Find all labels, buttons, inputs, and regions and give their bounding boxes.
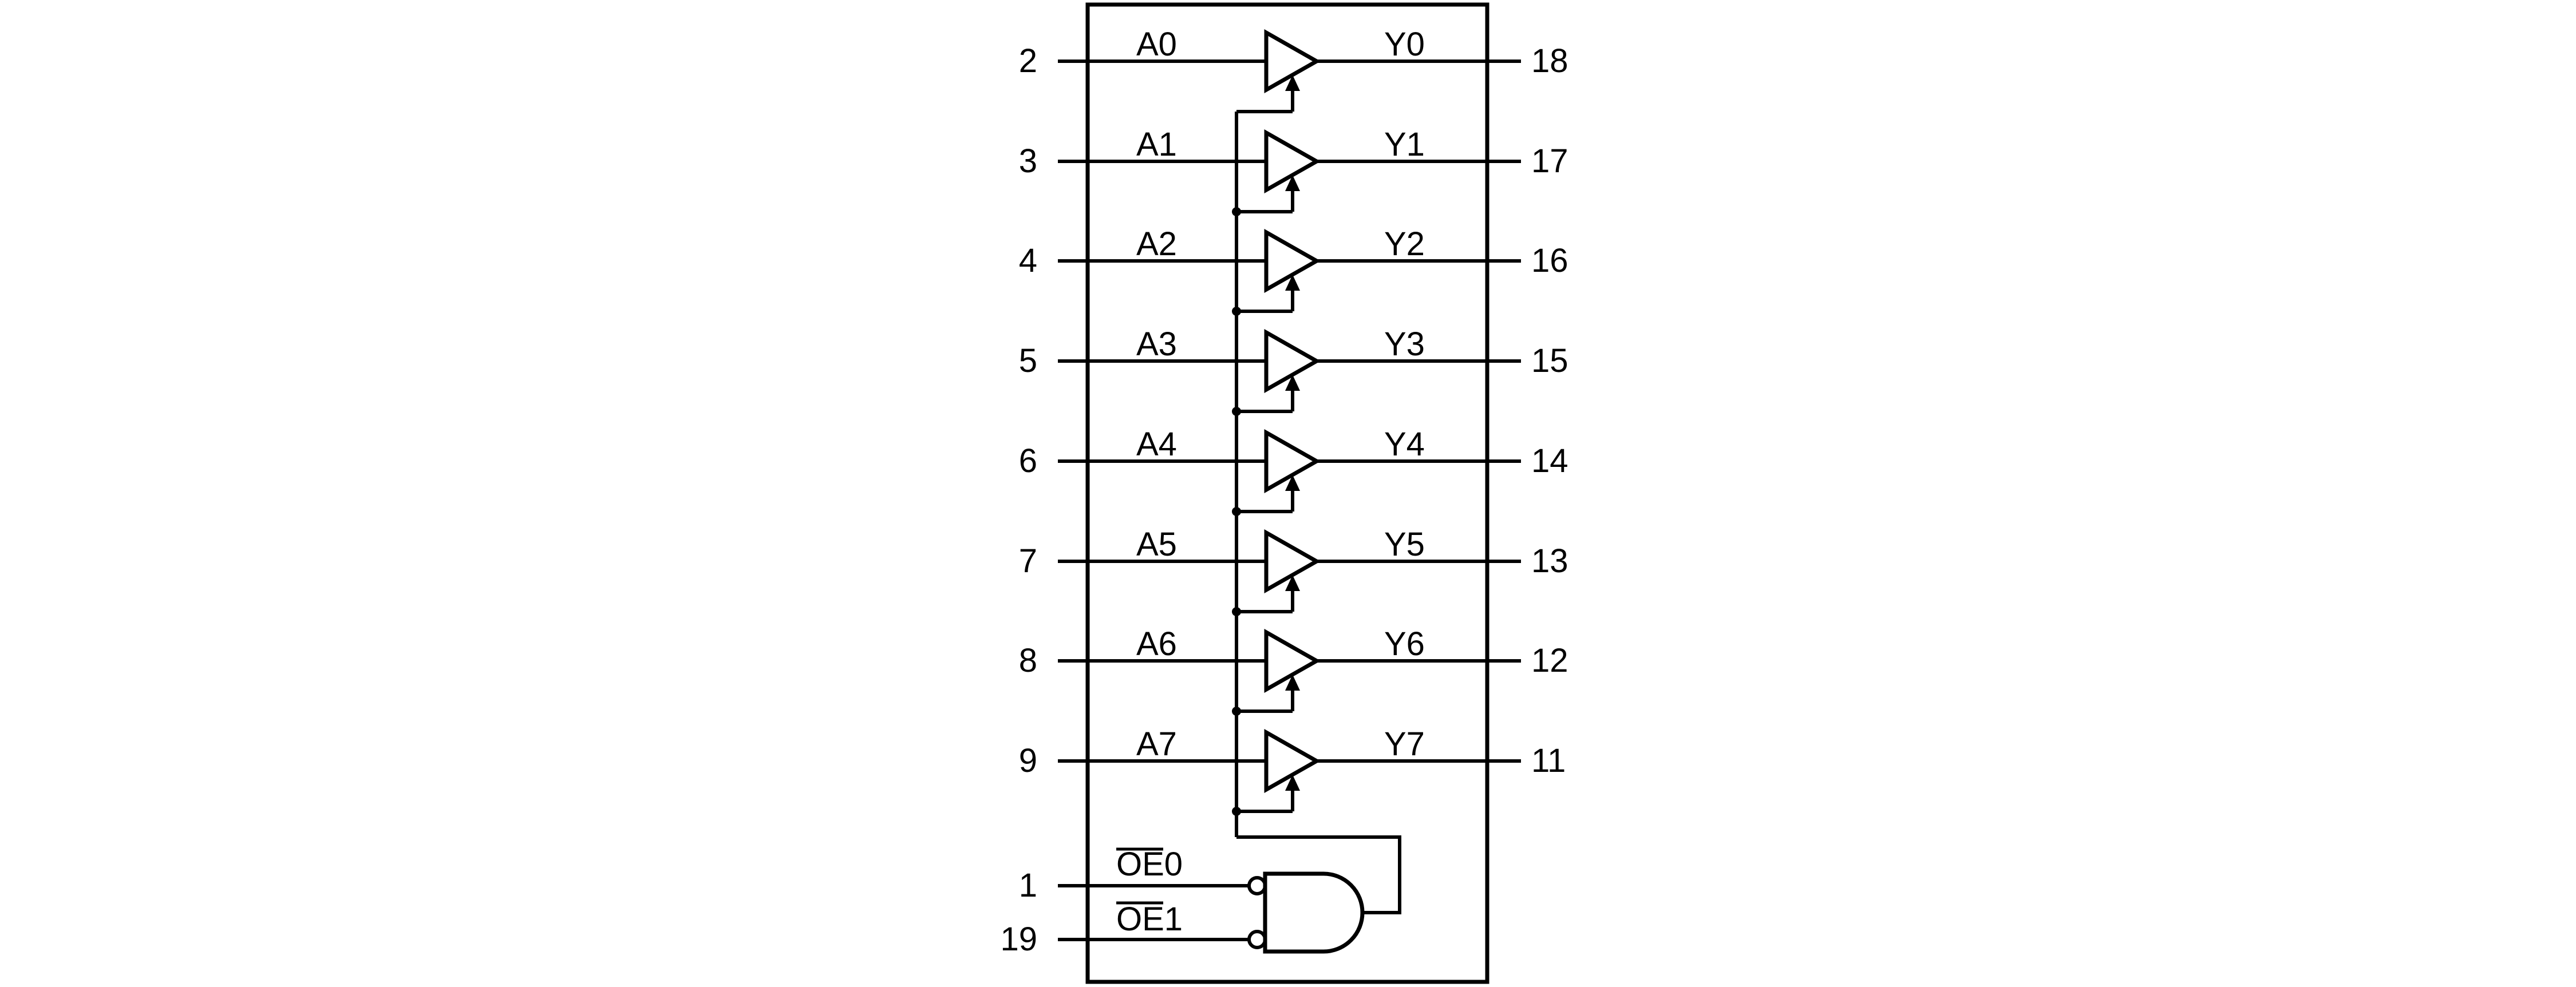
input-pin-number: 5 <box>1019 342 1037 379</box>
input-label: A5 <box>1136 526 1177 563</box>
input-label: A1 <box>1136 126 1177 163</box>
junction-dot <box>1232 507 1241 516</box>
input-label: A4 <box>1136 426 1177 463</box>
output-pin-number: 13 <box>1531 542 1568 580</box>
input-label: A7 <box>1136 726 1177 763</box>
output-pin-number: 17 <box>1531 142 1568 180</box>
enable-input-row: 1 OE0 <box>1019 846 1265 904</box>
octal-buffer-logic-diagram: 2A0Y0183A1Y1174A2Y2165A3Y3156A4Y4147A5Y5… <box>0 0 2576 987</box>
enable-gate-section: 1 OE0 19 OE1 <box>1000 846 1362 958</box>
inverter-bubble-icon <box>1249 878 1265 894</box>
input-label: A2 <box>1136 225 1177 263</box>
junction-dot <box>1232 207 1241 216</box>
junction-dot <box>1232 707 1241 716</box>
output-label: Y7 <box>1384 726 1425 763</box>
input-pin-number: 4 <box>1019 242 1037 279</box>
input-pin-number: 8 <box>1019 642 1037 679</box>
junction-dot <box>1232 607 1241 616</box>
input-pin-number: 2 <box>1019 42 1037 80</box>
output-pin-number: 15 <box>1531 342 1568 379</box>
output-pin-number: 18 <box>1531 42 1568 80</box>
enable-input-label: OE1 <box>1116 901 1183 938</box>
output-pin-number: 12 <box>1531 642 1568 679</box>
input-pin-number: 6 <box>1019 442 1037 479</box>
output-label: Y2 <box>1384 225 1425 263</box>
junction-dot <box>1232 307 1241 316</box>
enable-pin-number: 19 <box>1000 921 1037 958</box>
input-label: A0 <box>1136 26 1177 63</box>
output-label: Y5 <box>1384 526 1425 563</box>
input-label: A6 <box>1136 625 1177 663</box>
and-gate-icon <box>1265 874 1362 952</box>
junction-dot <box>1232 407 1241 416</box>
input-label: A3 <box>1136 326 1177 363</box>
output-label: Y4 <box>1384 426 1425 463</box>
output-pin-number: 16 <box>1531 242 1568 279</box>
input-pin-number: 7 <box>1019 542 1037 580</box>
logic-diagram-canvas: 2A0Y0183A1Y1174A2Y2165A3Y3156A4Y4147A5Y5… <box>0 0 2576 987</box>
enable-input-row: 19 OE1 <box>1000 901 1265 958</box>
output-pin-number: 14 <box>1531 442 1568 479</box>
output-label: Y1 <box>1384 126 1425 163</box>
junction-dot <box>1232 807 1241 816</box>
enable-pin-number: 1 <box>1019 867 1037 904</box>
inverter-bubble-icon <box>1249 931 1265 948</box>
output-label: Y0 <box>1384 26 1425 63</box>
input-pin-number: 9 <box>1019 742 1037 779</box>
output-pin-number: 11 <box>1531 742 1566 779</box>
output-label: Y3 <box>1384 326 1425 363</box>
enable-input-label: OE0 <box>1116 846 1183 883</box>
output-label: Y6 <box>1384 625 1425 663</box>
buffer-channel: 9A7Y711 <box>1019 726 1566 816</box>
input-pin-number: 3 <box>1019 142 1037 180</box>
